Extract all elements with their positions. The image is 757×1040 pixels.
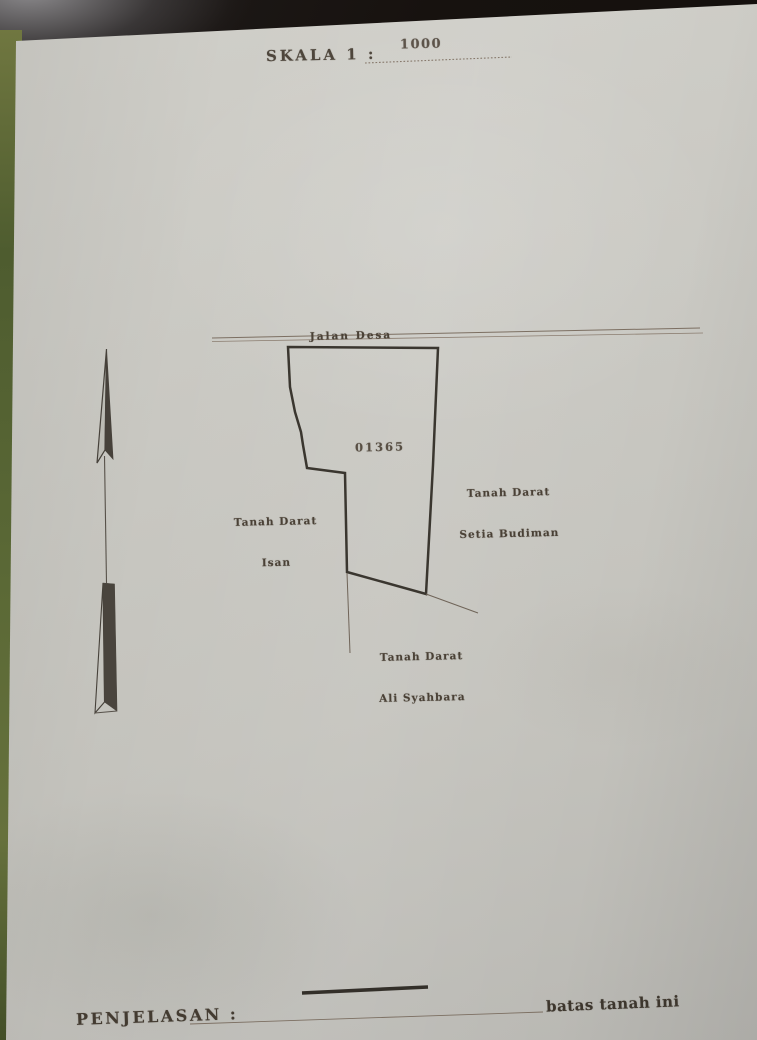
legend-boundary-symbol-line xyxy=(302,987,428,993)
neighbor-label-bottom: Tanah Darat Ali Syahbara xyxy=(362,623,482,735)
neighbor-bottom-line2: Ali Syahbara xyxy=(363,691,481,707)
scale-value: 1000 xyxy=(400,37,443,55)
parcel-number-label: 01365 xyxy=(355,439,405,455)
neighbor-left-line2: Isan xyxy=(220,556,332,572)
north-arrow-icon xyxy=(95,349,117,713)
neighbor-label-right: Tanah Darat Setia Budiman xyxy=(449,459,569,571)
photo-of-land-sketch-document: SKALA 1 : 1000 Jalan Desa 01365 Tanah Da… xyxy=(0,0,757,1040)
boundary-extension-left xyxy=(347,573,350,653)
boundary-extension-right xyxy=(426,594,478,613)
scale-dotted-line xyxy=(365,57,512,63)
road-label: Jalan Desa xyxy=(303,329,399,345)
neighbor-bottom-line1: Tanah Darat xyxy=(362,650,480,666)
sketch-linework xyxy=(0,0,757,1040)
neighbor-left-line1: Tanah Darat xyxy=(219,515,331,531)
neighbor-right-line2: Setia Budiman xyxy=(450,527,568,543)
legend-connector-line xyxy=(190,1012,543,1024)
neighbor-label-left: Tanah Darat Isan xyxy=(219,488,333,599)
village-road-lines xyxy=(212,328,703,342)
neighbor-right-line1: Tanah Darat xyxy=(449,486,567,502)
scale-label: SKALA 1 : xyxy=(266,45,377,67)
